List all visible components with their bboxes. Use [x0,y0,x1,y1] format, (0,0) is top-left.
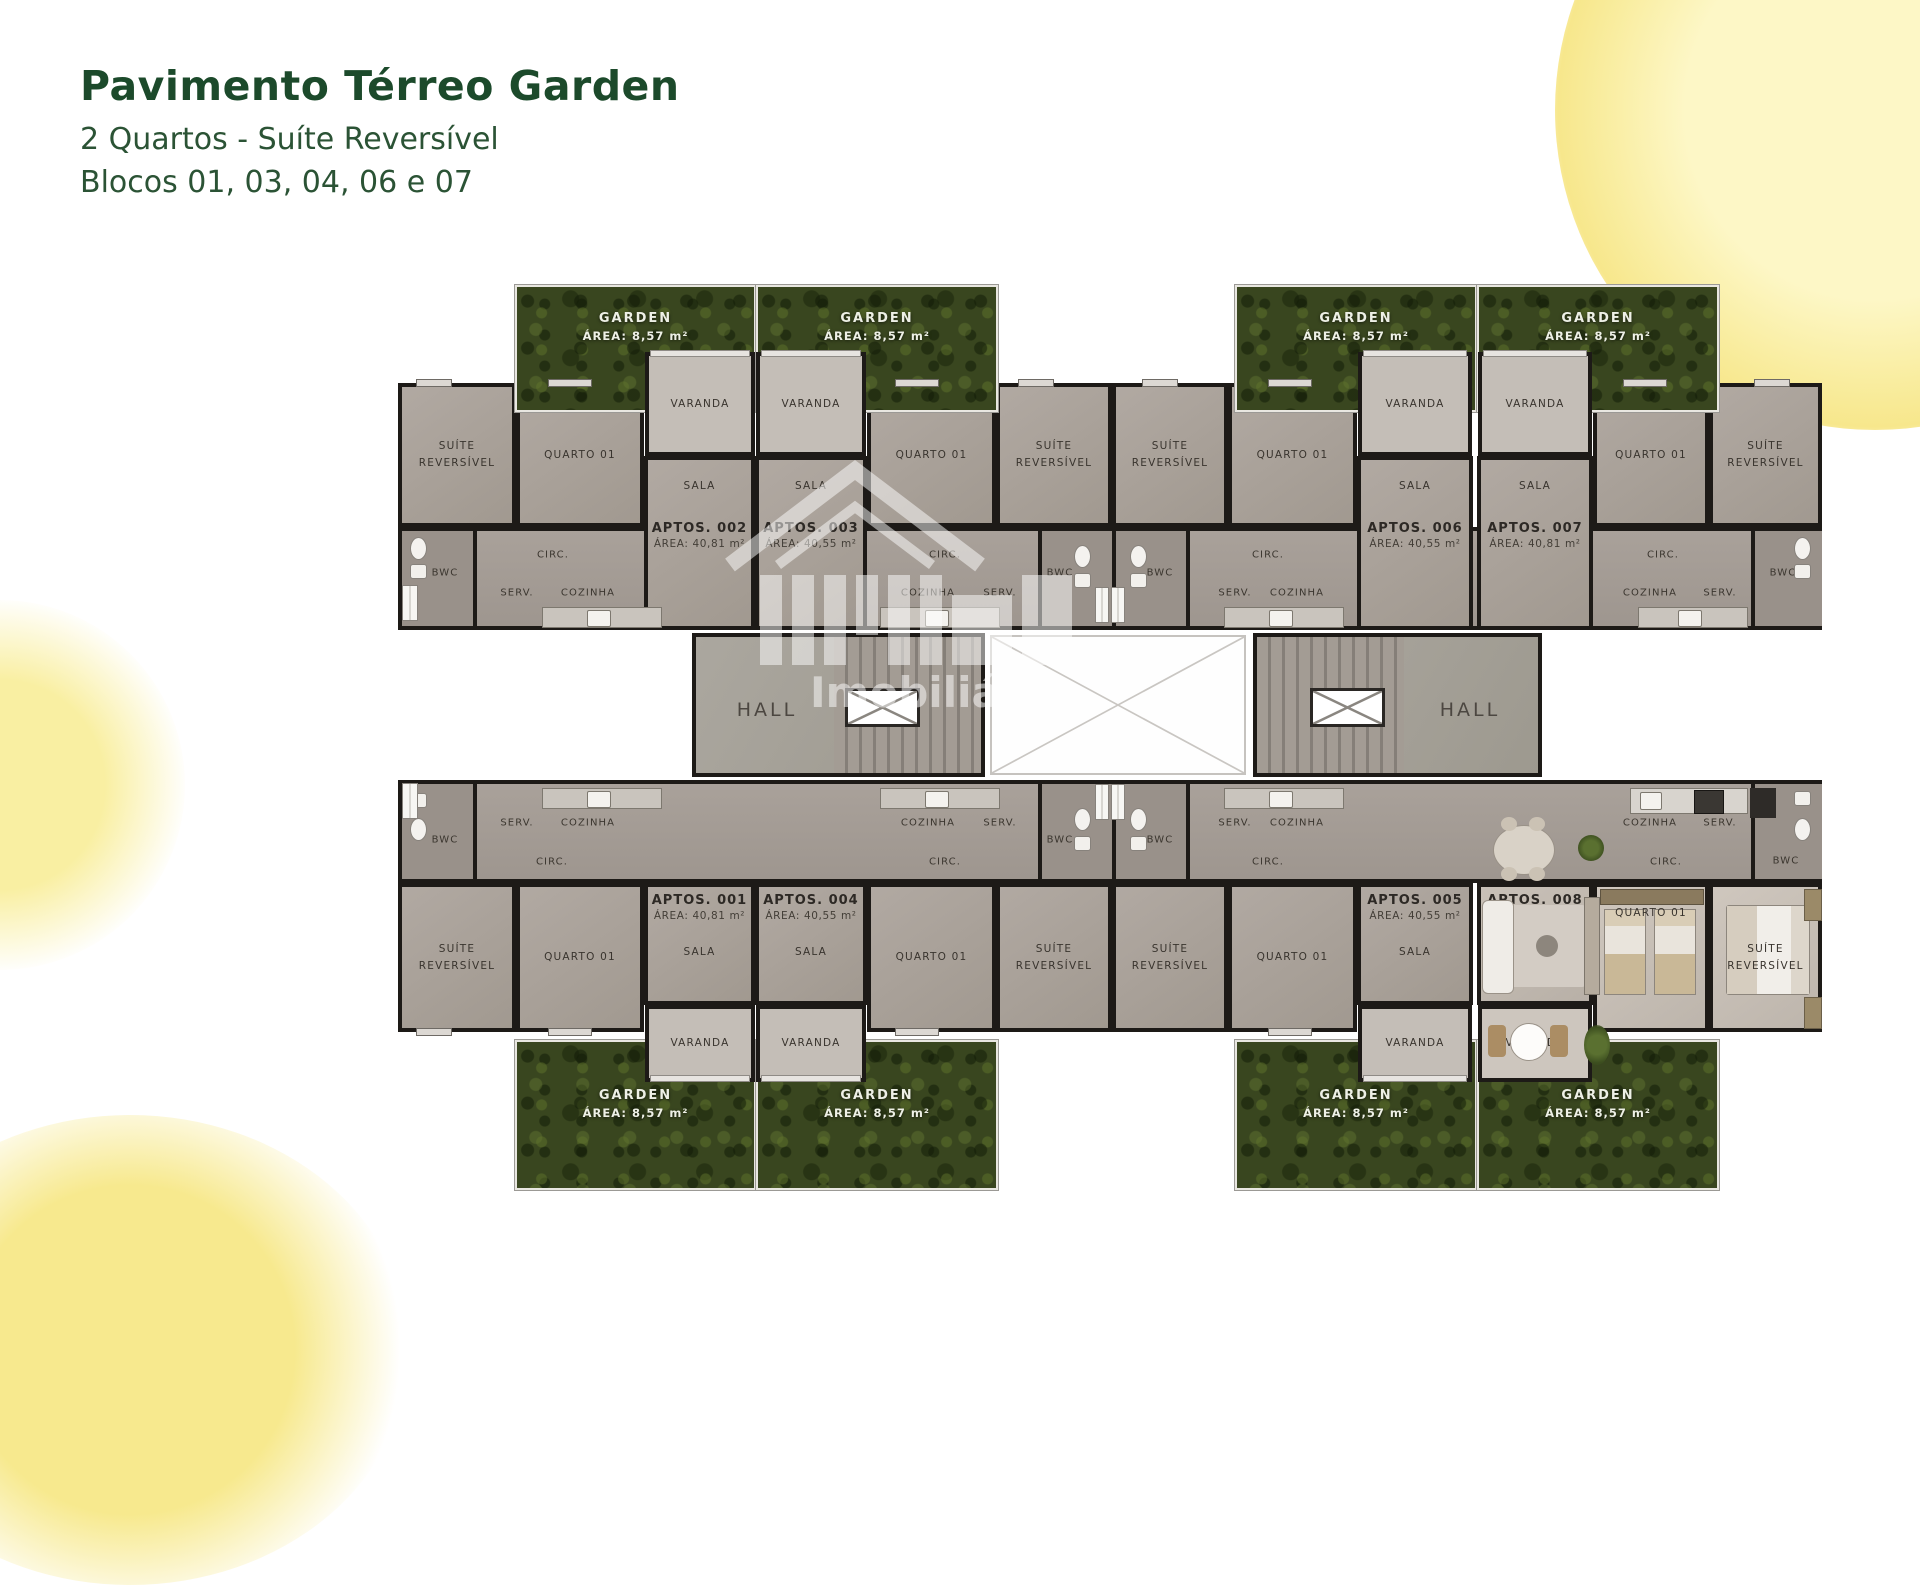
room-label: SUÍTE REVERSÍVEL [1124,438,1216,472]
room-label: SUÍTE REVERSÍVEL [1720,941,1812,975]
patio-chair-icon [1488,1025,1506,1057]
varanda-rail [761,350,861,357]
service-strip-top [398,527,1822,630]
circ-label: CIRC. [1647,550,1679,561]
window [1623,379,1667,387]
serv-label: SERV. [1218,588,1251,599]
room-label: VARANDA [781,1035,840,1052]
bwc-label: BWC [1147,835,1174,846]
room-label: QUARTO 01 [544,447,616,464]
window [1754,379,1790,387]
cozinha-label: COZINHA [1270,818,1324,829]
apt-name: APTOS. 003 [763,521,858,536]
apt-name: APTOS. 002 [652,521,747,536]
toilet-icon [1130,545,1147,568]
window [548,379,592,387]
circ-label: CIRC. [929,857,961,868]
plant-icon [1578,835,1604,861]
garden-label: GARDEN [1319,311,1392,326]
bwc-label: BWC [1773,856,1800,867]
room-label: SALA [683,478,715,495]
apt-name: APTOS. 005 [1367,893,1462,908]
varanda-apt003: VARANDA [756,352,866,456]
room-label: SUÍTE REVERSÍVEL [1008,941,1100,975]
dining-table-icon [1493,825,1555,875]
cozinha-label: COZINHA [561,818,615,829]
window [548,1028,592,1036]
service-strip-bottom [398,780,1822,883]
apt-label-003: APTOS. 003 ÁREA: 40,55 m² [763,521,858,550]
shower-icon [402,585,418,621]
bwc-label: BWC [1770,568,1797,579]
sala-apt006: SALA APTOS. 006 ÁREA: 40,55 m² [1357,456,1473,630]
room-suite-apt007: SUÍTE REVERSÍVEL [1709,383,1822,527]
bwc-label: BWC [432,835,459,846]
window [1268,1028,1312,1036]
toilet-icon [410,818,427,841]
dining-chair-icon [1501,867,1517,881]
room-suite-apt001: SUÍTE REVERSÍVEL [398,883,516,1032]
sala-apt001: APTOS. 001 ÁREA: 40,81 m² SALA [644,883,755,1005]
varanda-rail [1483,350,1587,357]
bwc-label: BWC [1047,568,1074,579]
sala-apt003: SALA APTOS. 003 ÁREA: 40,55 m² [755,456,867,630]
cozinha-label: COZINHA [561,588,615,599]
room-quarto-apt001: QUARTO 01 [516,883,644,1032]
room-label: SALA [795,944,827,961]
kitchen-sink [1269,610,1293,627]
apt-name: APTOS. 004 [763,893,858,908]
sala-apt005: APTOS. 005 ÁREA: 40,55 m² SALA [1357,883,1473,1005]
page-title: Pavimento Térreo Garden [80,62,680,110]
sink-icon [410,564,427,579]
garden-label: GARDEN [1561,311,1634,326]
cozinha-label: COZINHA [901,588,955,599]
room-quarto-apt005: QUARTO 01 [1228,883,1357,1032]
void-center [990,635,1246,775]
stove-icon [1694,790,1724,814]
dining-chair-icon [1529,817,1545,831]
room-label: QUARTO 01 [896,447,968,464]
room-label: SUÍTE REVERSÍVEL [411,438,503,472]
room-label: SUÍTE REVERSÍVEL [411,941,503,975]
room-quarto-apt004: QUARTO 01 [867,883,996,1032]
toilet-icon [1130,808,1147,831]
window [416,379,452,387]
page: { "title": { "heading": "Pavimento Térre… [0,0,1920,1264]
garden-area-label: ÁREA: 8,57 m² [1545,1106,1651,1120]
room-suite-apt003: SUÍTE REVERSÍVEL [996,383,1112,527]
elevator-right [1310,688,1385,727]
varanda-apt007: VARANDA [1478,352,1592,456]
apt-area: ÁREA: 40,55 m² [763,910,858,922]
garden-area-label: ÁREA: 8,57 m² [1545,329,1651,343]
patio-table-icon [1510,1023,1548,1061]
apt-name: APTOS. 006 [1367,521,1462,536]
bed-single-icon [1604,909,1646,995]
room-label: SALA [1399,944,1431,961]
kitchen-sink [1678,610,1702,627]
toilet-icon [1794,818,1811,841]
apt-area: ÁREA: 40,81 m² [652,910,747,922]
garden-label: GARDEN [840,1088,913,1103]
sala-apt004: APTOS. 004 ÁREA: 40,55 m² SALA [755,883,867,1005]
coffee-table-icon [1536,935,1558,957]
room-label: SALA [1519,478,1551,495]
page-blocks: Blocos 01, 03, 04, 06 e 07 [80,165,680,200]
shower-icon [1111,587,1125,623]
dining-chair-icon [1529,867,1545,881]
apt-area: ÁREA: 40,55 m² [1367,538,1462,550]
circ-label: CIRC. [1650,857,1682,868]
room-label: VARANDA [1505,396,1564,413]
apt-area: ÁREA: 40,55 m² [1367,910,1462,922]
toilet-icon [1074,808,1091,831]
room-label: SUÍTE REVERSÍVEL [1124,941,1216,975]
garden-label: GARDEN [1319,1088,1392,1103]
serv-label: SERV. [983,818,1016,829]
garden-label: GARDEN [840,311,913,326]
window [1018,379,1054,387]
garden-area-label: ÁREA: 8,57 m² [583,1106,689,1120]
toilet-icon [1074,545,1091,568]
decor-blob-bottom-left [0,1115,410,1585]
shower-icon [402,783,418,819]
apt-label-004: APTOS. 004 ÁREA: 40,55 m² [763,893,858,922]
serv-label: SERV. [983,588,1016,599]
cozinha-label: COZINHA [1623,588,1677,599]
cozinha-label: COZINHA [1623,818,1677,829]
garden-label: GARDEN [1561,1088,1634,1103]
shower-icon [1095,784,1109,820]
hall-label: HALL [737,699,797,721]
circ-label: CIRC. [929,550,961,561]
circ-label: CIRC. [537,550,569,561]
serv-label: SERV. [500,818,533,829]
sink-icon [1130,573,1147,588]
kitchen-sink [925,610,949,627]
varanda-rail [650,350,750,357]
elevator-left [845,688,920,727]
floor-plan: GARDEN ÁREA: 8,57 m² GARDEN ÁREA: 8,57 m… [398,283,1822,1190]
room-label: SALA [683,944,715,961]
room-label: VARANDA [670,396,729,413]
varanda-rail [650,1075,750,1082]
room-label: QUARTO 01 [1615,905,1687,922]
window [895,379,939,387]
room-label: QUARTO 01 [1615,447,1687,464]
cozinha-label: COZINHA [1270,588,1324,599]
kitchen-sink [1269,791,1293,808]
varanda-apt006: VARANDA [1358,352,1472,456]
bwc-label: BWC [432,568,459,579]
sofa-icon [1482,900,1514,994]
apt-area: ÁREA: 40,81 m² [652,538,747,550]
varanda-apt002: VARANDA [645,352,755,456]
room-label: QUARTO 01 [544,949,616,966]
toilet-icon [1794,537,1811,560]
tv-rack-icon [1584,897,1600,995]
window [1142,379,1178,387]
apt-area: ÁREA: 40,55 m² [763,538,858,550]
apt-label-002: APTOS. 002 ÁREA: 40,81 m² [652,521,747,550]
shower-icon [1095,587,1109,623]
varanda-rail [761,1075,861,1082]
decor-blob-left [0,600,185,970]
sala-apt002: SALA APTOS. 002 ÁREA: 40,81 m² [644,456,755,630]
window [895,1028,939,1036]
sink-icon [1074,836,1091,851]
garden-area-label: ÁREA: 8,57 m² [1303,329,1409,343]
page-subtitle: 2 Quartos - Suíte Reversível [80,122,680,157]
title-block: Pavimento Térreo Garden 2 Quartos - Suít… [80,62,680,208]
sala-apt007: SALA APTOS. 007 ÁREA: 40,81 m² [1477,456,1593,630]
blanket-icon [1655,954,1695,994]
apt-label-005: APTOS. 005 ÁREA: 40,55 m² [1367,893,1462,922]
bwc-label: BWC [1047,835,1074,846]
garden-area-label: ÁREA: 8,57 m² [824,329,930,343]
room-suite-apt002: SUÍTE REVERSÍVEL [398,383,516,527]
varanda-apt001: VARANDA [645,1005,755,1082]
room-label: QUARTO 01 [1257,447,1329,464]
apt-label-007: APTOS. 007 ÁREA: 40,81 m² [1487,521,1582,550]
room-label: VARANDA [1385,396,1444,413]
room-suite-apt005: SUÍTE REVERSÍVEL [1112,883,1228,1032]
shower-icon [1111,784,1125,820]
room-label: VARANDA [670,1035,729,1052]
garden-area-label: ÁREA: 8,57 m² [1303,1106,1409,1120]
varanda-rail [1363,1075,1467,1082]
serv-label: SERV. [500,588,533,599]
circ-label: CIRC. [1252,550,1284,561]
plant-icon [1584,1025,1610,1065]
kitchen-sink [925,791,949,808]
bwc-label: BWC [1147,568,1174,579]
circ-label: CIRC. [536,857,568,868]
serv-label: SERV. [1703,818,1736,829]
bed-single-icon [1654,909,1696,995]
wardrobe-icon [1804,889,1822,921]
apt-label-001: APTOS. 001 ÁREA: 40,81 m² [652,893,747,922]
fridge-icon [1750,788,1776,818]
serv-label: SERV. [1218,818,1251,829]
wardrobe-icon [1600,889,1704,905]
serv-label: SERV. [1703,588,1736,599]
room-label: VARANDA [1385,1035,1444,1052]
window [416,1028,452,1036]
circ-label: CIRC. [1252,857,1284,868]
room-suite-apt004: SUÍTE REVERSÍVEL [996,883,1112,1032]
bwc-apt007 [1751,531,1822,626]
room-label: QUARTO 01 [896,949,968,966]
varanda-rail [1363,350,1467,357]
room-label: QUARTO 01 [1257,949,1329,966]
room-label: SALA [1399,478,1431,495]
garden-label: GARDEN [599,1088,672,1103]
kitchen-sink [1640,792,1662,810]
room-suite-apt006: SUÍTE REVERSÍVEL [1112,383,1228,527]
room-label: SUÍTE REVERSÍVEL [1008,438,1100,472]
patio-chair-icon [1550,1025,1568,1057]
window [1268,379,1312,387]
kitchen-sink [587,610,611,627]
varanda-apt004: VARANDA [756,1005,866,1082]
dining-chair-icon [1501,817,1517,831]
garden-area-label: ÁREA: 8,57 m² [583,329,689,343]
toilet-icon [410,537,427,560]
garden-area-label: ÁREA: 8,57 m² [824,1106,930,1120]
apt-area: ÁREA: 40,81 m² [1487,538,1582,550]
apt-name: APTOS. 007 [1487,521,1582,536]
sink-icon [1074,573,1091,588]
kitchen-sink [587,791,611,808]
apt-label-006: APTOS. 006 ÁREA: 40,55 m² [1367,521,1462,550]
sink-icon [1794,791,1811,806]
apt-name: APTOS. 001 [652,893,747,908]
sink-icon [1794,564,1811,579]
sink-icon [1130,836,1147,851]
room-label: VARANDA [781,396,840,413]
wardrobe-icon [1804,997,1822,1029]
garden-label: GARDEN [599,311,672,326]
blanket-icon [1605,954,1645,994]
room-label: SALA [795,478,827,495]
varanda-apt005: VARANDA [1358,1005,1472,1082]
room-label: SUÍTE REVERSÍVEL [1720,438,1812,472]
cozinha-label: COZINHA [901,818,955,829]
hall-label: HALL [1440,699,1500,721]
